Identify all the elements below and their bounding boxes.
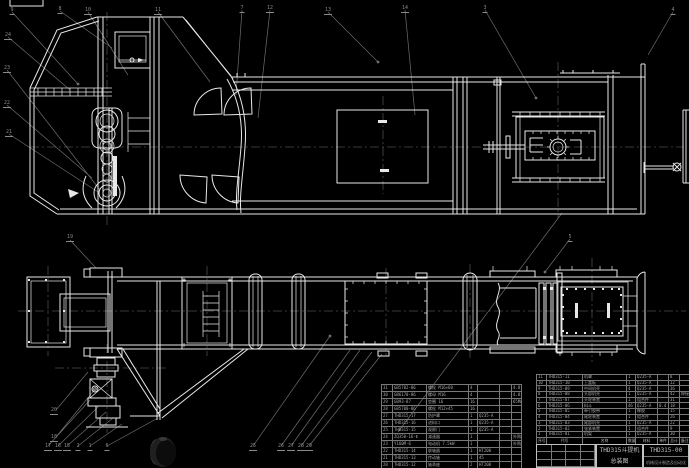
signature-grid — [536, 444, 596, 468]
signature-cell — [581, 445, 596, 452]
takeup-device — [483, 70, 681, 182]
signature-cell — [552, 452, 567, 459]
signature-cell — [537, 452, 552, 459]
table-header-row: 序号代号名称数量材料单件总计备注 — [537, 437, 689, 444]
table-row: 24ZQ350-16-Ⅱ减速器1外购 — [382, 434, 522, 441]
table-row: 25THD315-15观察门1Q235-A — [382, 427, 522, 434]
table-row: 20THD315-12轴承座2HT200 — [382, 462, 522, 468]
signature-cell — [537, 460, 552, 467]
signature-cell — [552, 445, 567, 452]
signature-cell — [552, 460, 567, 467]
table-row: 29GB93-87垫圈 161665Mn — [382, 399, 522, 406]
table-row: 28GB5780-86螺栓 M12×4516 — [382, 406, 522, 413]
signature-cell — [581, 452, 596, 459]
product-title: THD315斗提机 — [597, 445, 642, 456]
signature-cell — [581, 460, 596, 467]
title-block-name: THD315斗提机 总装图 — [596, 444, 643, 468]
table-row: 22THD315-14联轴器1HT200 — [382, 448, 522, 455]
table-row: 27THD315-17防护罩1Q235-A — [382, 413, 522, 420]
bellows-joint — [539, 283, 557, 344]
signature-cell — [566, 445, 581, 452]
organization-name: 机械设计制造及自动化 — [644, 457, 688, 468]
bom-table-right: 11THD315-11机罩1Q235-A810THD315-10上盖板1Q235… — [536, 374, 689, 445]
table-row: 30GB6170-86螺母 M1644.8 — [382, 392, 522, 399]
drawing-number: THD315-00 — [644, 445, 688, 457]
signature-cell — [566, 452, 581, 459]
watermark-sphere — [150, 437, 176, 467]
table-row: 23Y160M-6电动机 7.5kW1外购 — [382, 441, 522, 448]
bom-table-left: 31GB5782-86螺栓 M16×6044.830GB6170-86螺母 M1… — [381, 384, 522, 468]
table-row: 26THD315-16进料口1Q235-A — [382, 420, 522, 427]
table-row: 31GB5782-86螺栓 M16×6044.8 — [382, 385, 522, 392]
signature-cell — [566, 460, 581, 467]
title-block-number: THD315-00 机械设计制造及自动化 — [643, 444, 689, 468]
cad-canvas: 9810117121314342423222119520181716152162… — [0, 0, 689, 468]
table-row: 21THD315-13传动轴145 — [382, 455, 522, 462]
drawing-title: 总装图 — [597, 456, 642, 467]
top-view-drawing — [10, 0, 689, 214]
signature-cell — [537, 445, 552, 452]
